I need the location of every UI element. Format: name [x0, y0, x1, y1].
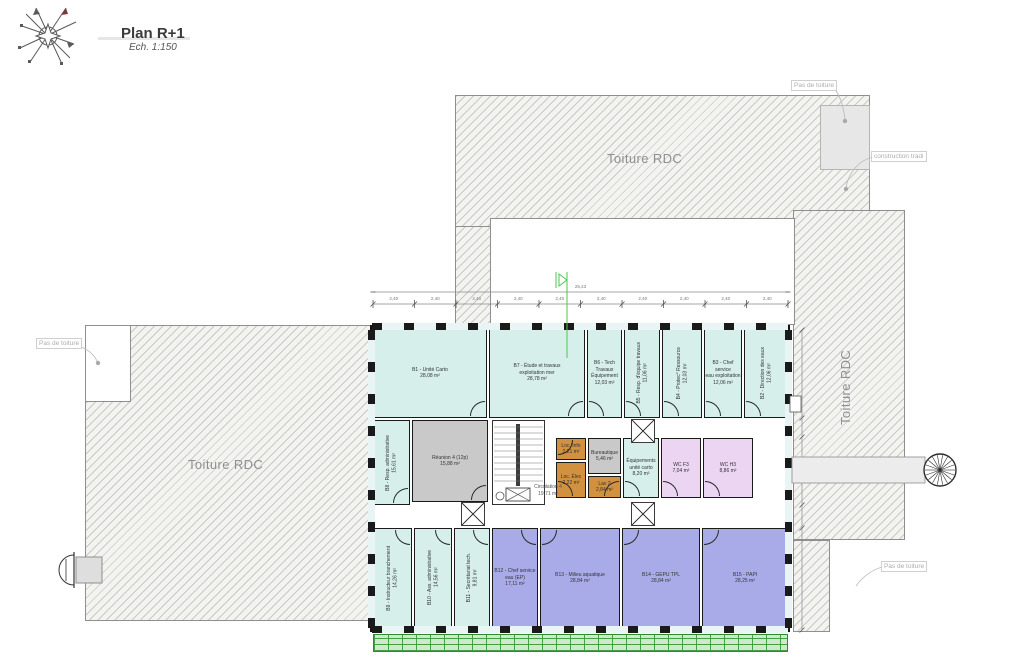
dim-segment: 2,40 [498, 296, 540, 301]
dim-total: 25,43 [373, 284, 788, 289]
dim-segment: 2,40 [373, 296, 415, 301]
callout-pas-de-toiture-top: Pas de toiture [791, 80, 837, 91]
dim-segment: 2,40 [581, 296, 623, 301]
dim-segment: 2,40 [705, 296, 747, 301]
annotation-overlay [0, 0, 1024, 658]
callout-construction-tradi: construction tradi [871, 151, 927, 162]
dim-segment: 2,40 [539, 296, 581, 301]
callout-pas-de-toiture-left: Pas de toiture [36, 338, 82, 349]
dim-segment: 2,40 [664, 296, 706, 301]
dim-segment: 2,40 [456, 296, 498, 301]
dim-segment: 2,40 [747, 296, 789, 301]
dim-segment: 2,40 [622, 296, 664, 301]
dim-segment: 2,40 [415, 296, 457, 301]
floor-plan: Plan R+1 Ech. 1:150 Toiture RDC Toiture … [0, 0, 1024, 658]
callout-pas-de-toiture-bottom: Pas de toiture [881, 561, 927, 572]
